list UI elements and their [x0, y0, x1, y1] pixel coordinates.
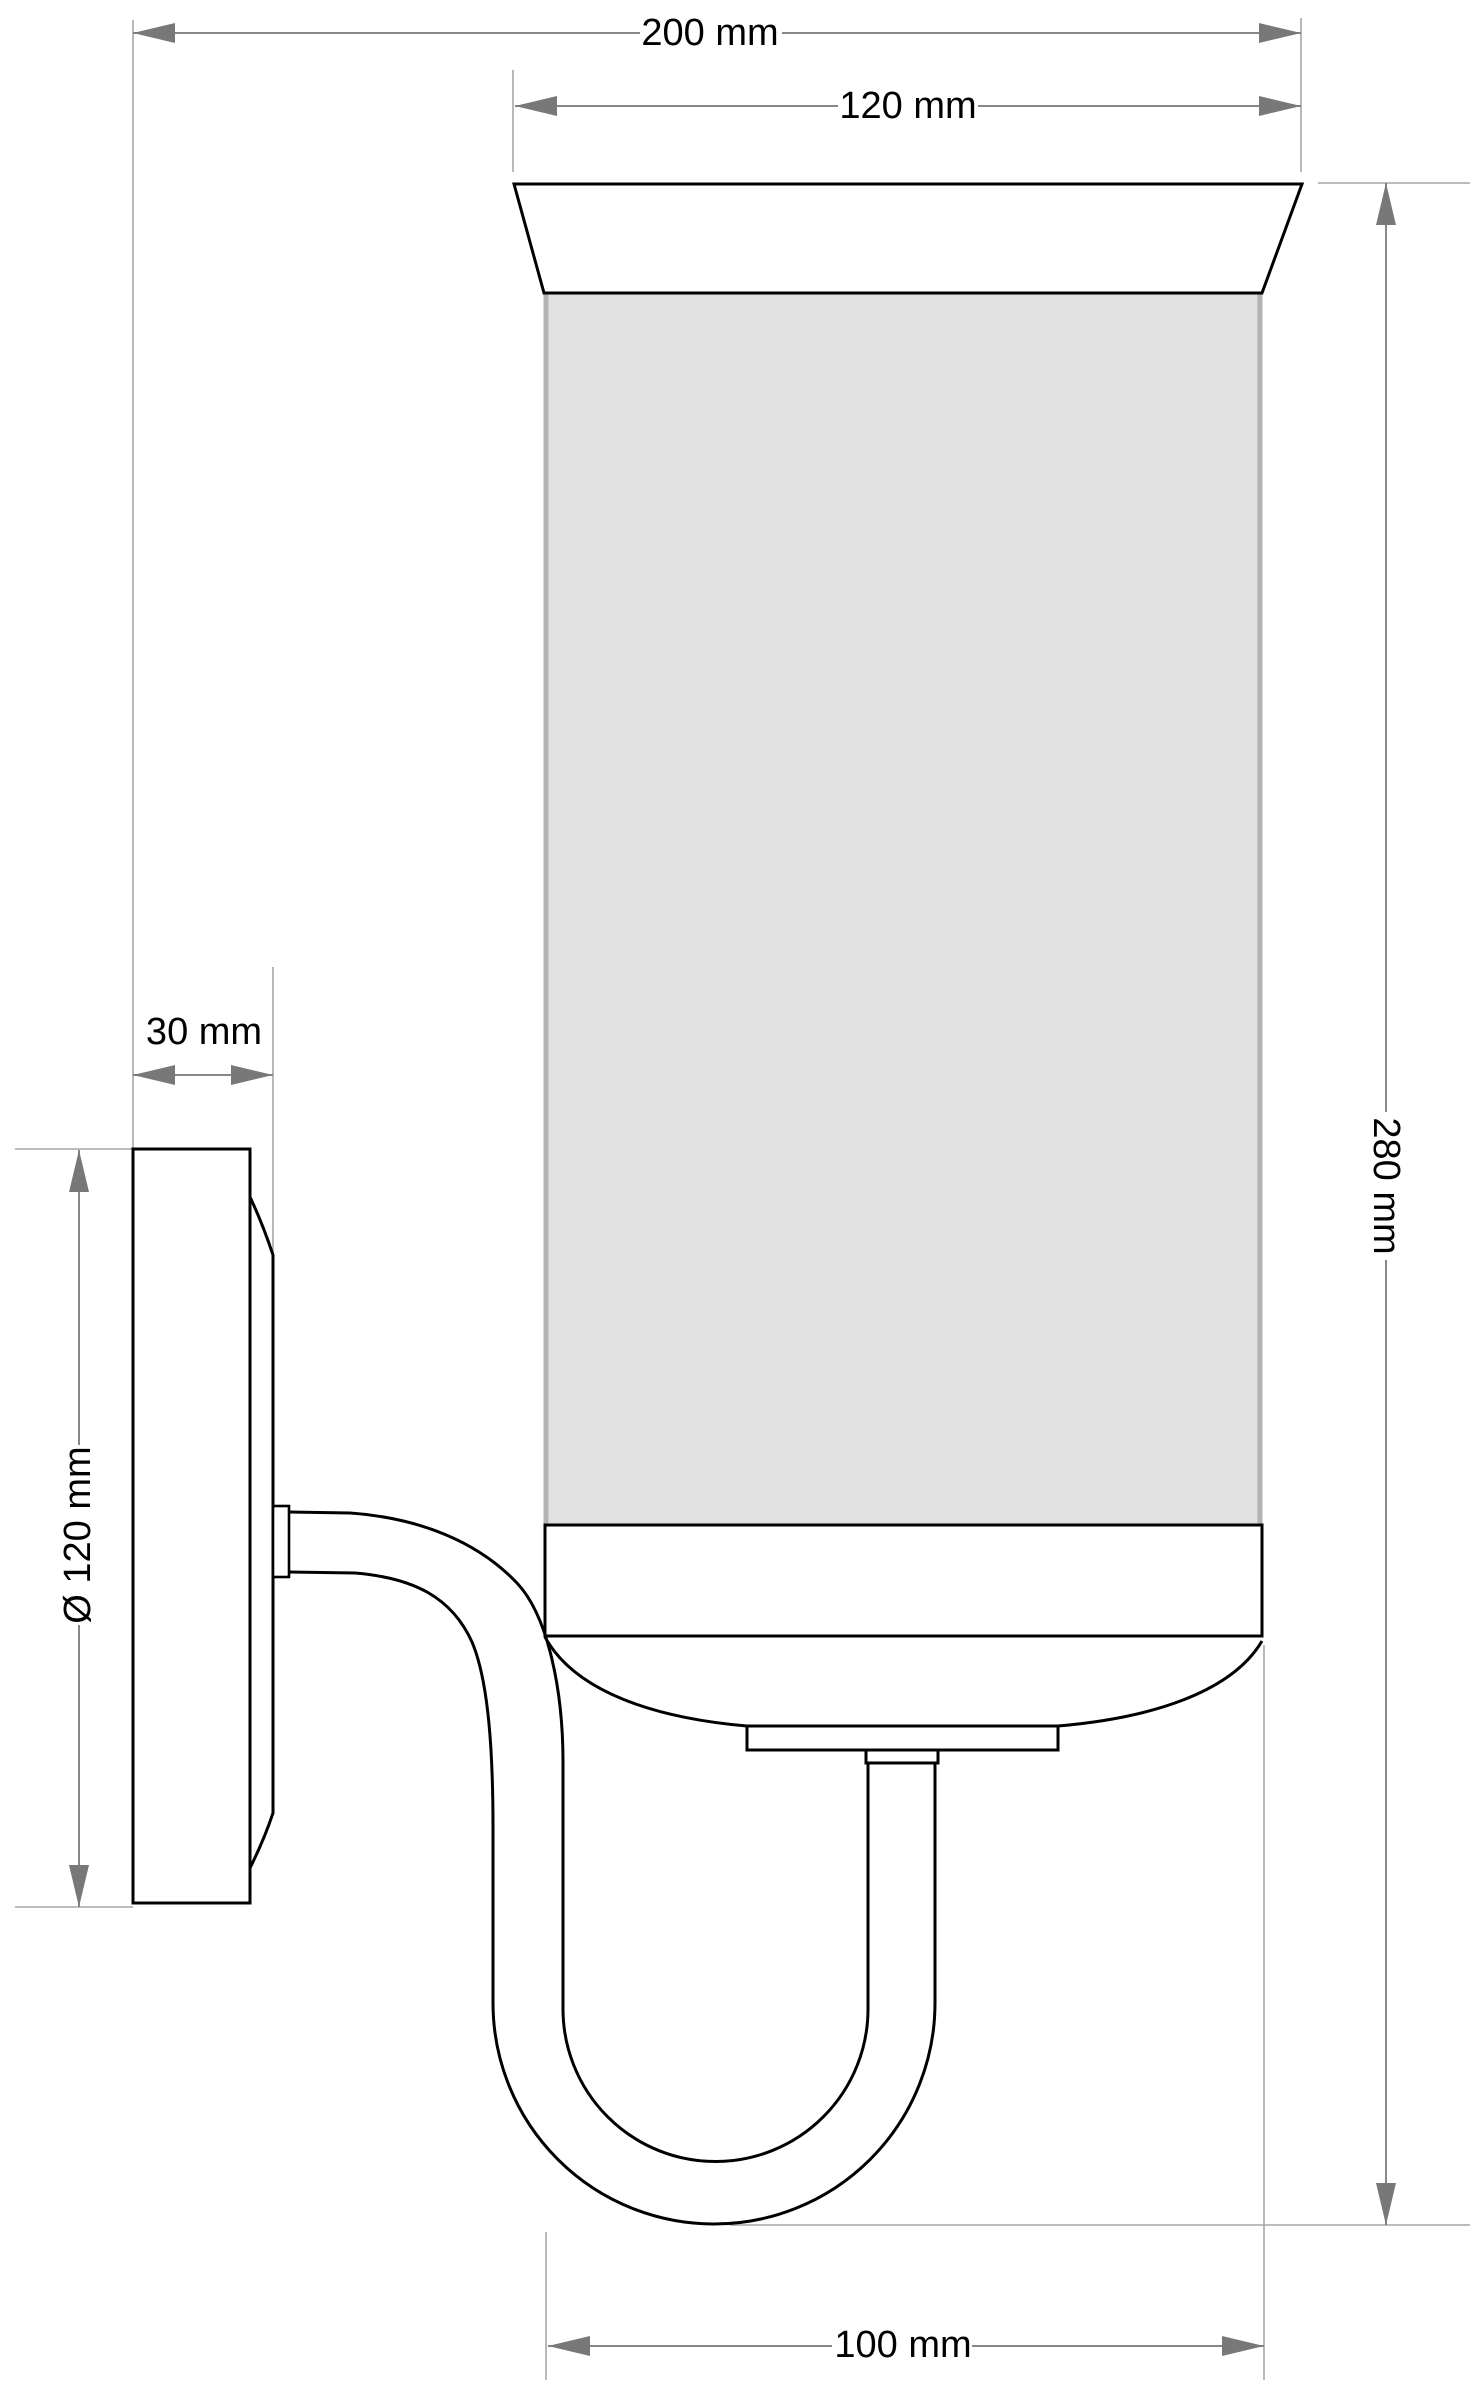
shade-holder-band: [545, 1525, 1262, 1636]
dimension-label-body-diameter: 100 mm: [834, 2326, 971, 2364]
technical-drawing-canvas: 200 mm 120 mm 30 mm Ø 120 mm 280 mm 100 …: [0, 0, 1475, 2384]
arm-flange: [273, 1506, 289, 1577]
sconce-drawing: [0, 0, 1475, 2384]
wall-backplate: [133, 1149, 250, 1903]
stem-collar: [866, 1750, 938, 1763]
dimension-label-backplate-depth: 30 mm: [146, 1013, 262, 1051]
glass-shade: [544, 293, 1262, 1525]
dimension-label-overall-height: 280 mm: [1367, 1117, 1405, 1254]
shade-top-rim: [514, 184, 1302, 293]
dimension-label-overall-projection: 200 mm: [641, 14, 778, 52]
dimension-label-backplate-diameter: Ø 120 mm: [59, 1446, 97, 1623]
base-plate: [747, 1726, 1058, 1750]
dimension-label-shade-top-width: 120 mm: [839, 87, 976, 125]
